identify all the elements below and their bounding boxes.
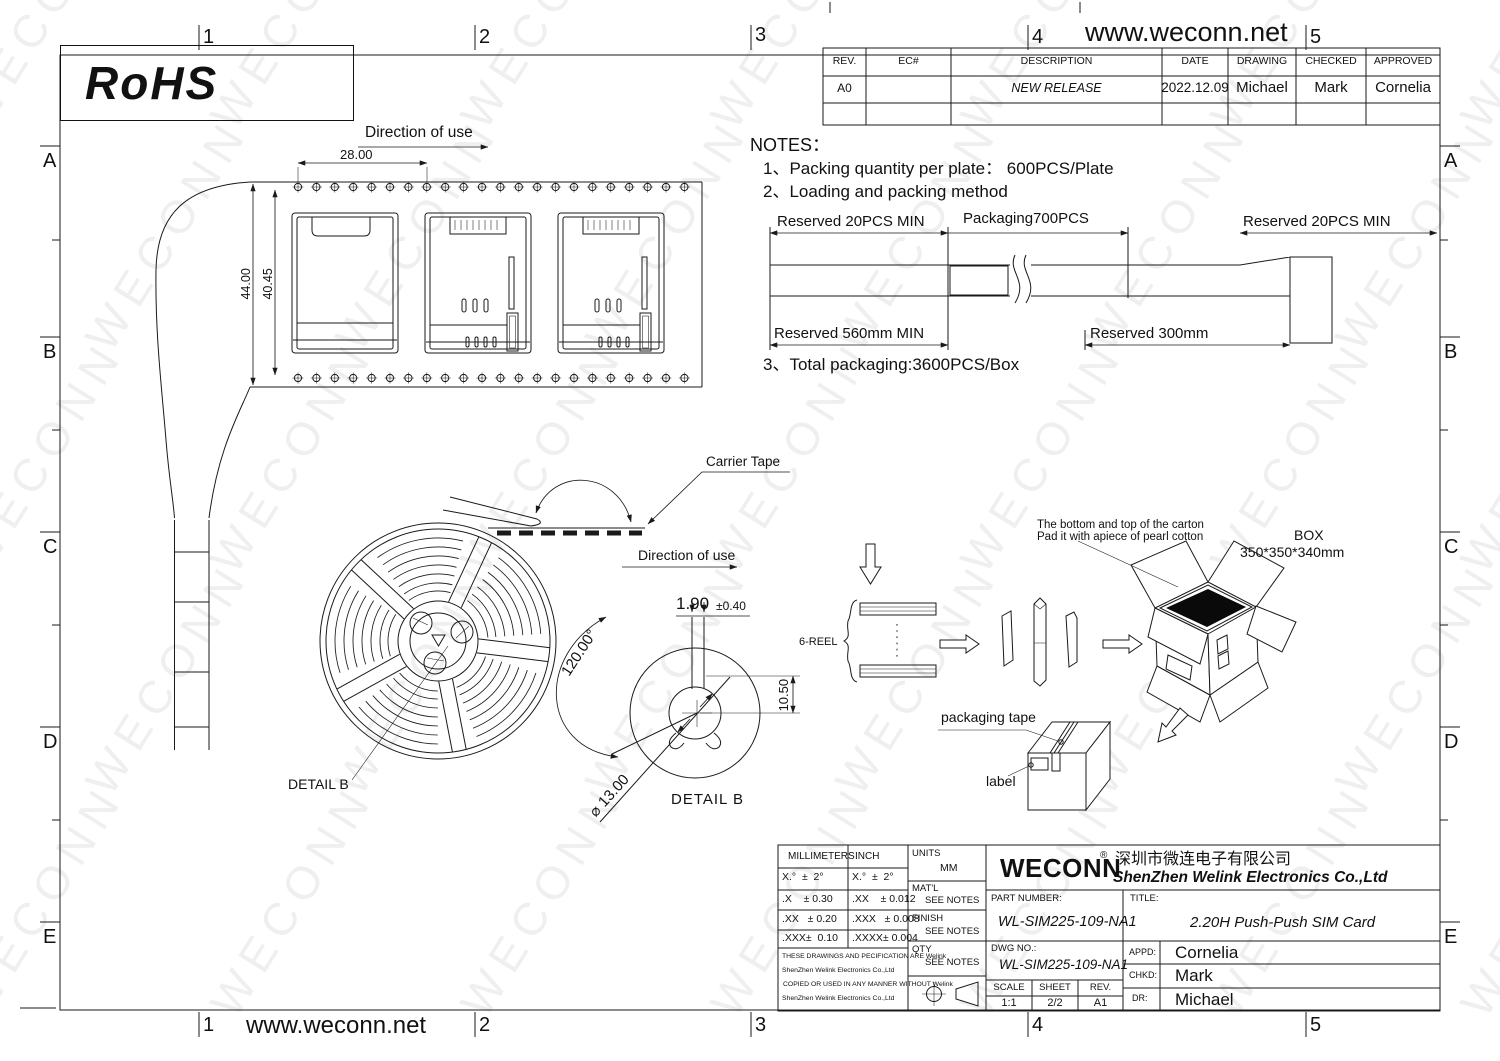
description-header: DESCRIPTION [951,56,1162,68]
box-size-label: 350*350*340mm [1240,545,1344,560]
carton-note-line1: The bottom and top of the carton [1037,519,1204,532]
reserved-left-label: Reserved 20PCS MIN [777,214,925,231]
company-name-en: ShenZhen Welink Electronics Co.,Ltd [1113,869,1387,886]
tol-mm-header: MILLIMETERS [788,851,855,862]
connector-footprint [425,213,531,353]
zone-row-a-left: A [43,150,56,172]
zone-row-d-left: D [43,731,57,753]
zone-row-a-right: A [1444,150,1457,172]
title-value: 2.20H Push-Push SIM Card [1190,915,1375,932]
matl-label: MAT'L [912,884,938,894]
ec-header: EC# [866,56,951,68]
carton-note-line2: Pad it with apiece of pearl cotton [1037,531,1203,544]
units-label: UNITS [912,849,941,859]
drawing-header: DRAWING [1228,56,1296,68]
zone-row-c-right: C [1444,536,1458,558]
pearl-cotton-pad [1066,612,1077,667]
pearl-cotton-pad [1002,611,1013,666]
title-label: TITLE: [1130,894,1159,904]
zone-col-2-top: 2 [479,26,490,48]
empty-pocket-footprint [292,213,398,353]
units-value: MM [940,863,958,875]
legal-line3: COPIED OR USED IN ANY MANNER WITHOUT Wel… [783,981,953,988]
description-value: NEW RELEASE [951,82,1162,96]
reserved-right-label: Reserved 20PCS MIN [1243,214,1391,231]
scale-label: SCALE [986,983,1032,993]
tol-mm-row4: .XXX± 0.10 [782,933,838,945]
pearl-cotton-pad [1034,598,1046,686]
checked-value: Mark [1296,80,1366,97]
reserved-300-label: Reserved 300mm [1090,326,1208,343]
notes-title: NOTES： [750,136,830,156]
sheet-label: SHEET [1032,983,1078,993]
packing-flow-drawing [844,541,1296,810]
company-name-cn: 深圳市微连电子有限公司 [1115,851,1291,869]
zone-row-b-right: B [1444,341,1457,363]
tol-inch-row2: .XX ± 0.012 [852,894,916,906]
tol-mm-row3: .XX ± 0.20 [782,914,837,926]
zone-col-4-bottom: 4 [1032,1014,1043,1036]
rev-value: A0 [823,82,866,95]
rohs-badge: RoHS [60,45,354,121]
carrier-tape-peel-drawing [443,472,790,567]
appd-label: APPD: [1129,948,1156,958]
dr-label: DR: [1132,994,1148,1004]
detail-b-callout: DETAIL B [288,777,349,792]
date-value: 2022.12.09 [1160,81,1230,96]
dwg-no-value: WL-SIM225-109-NA1 [999,958,1128,973]
appd-value: Cornelia [1175,944,1238,963]
dim-190-tol: ±0.40 [716,600,746,613]
dr-value: Michael [1175,991,1234,1010]
zone-row-e-right: E [1444,926,1457,948]
qty-label: QTY [912,945,932,955]
carrier-tape-label: Carrier Tape [706,455,780,470]
drawing-value: Michael [1228,80,1296,97]
finish-label: FINISH [912,914,943,924]
part-number-value: WL-SIM225-109-NA1 [998,915,1137,931]
zone-col-2-bottom: 2 [479,1014,490,1036]
zone-row-d-right: D [1444,731,1458,753]
carton-label-label: label [986,774,1016,789]
tol-inch-row3: .XXX ± 0.008 [852,914,920,926]
tol-mm-row2: .X ± 0.30 [782,894,833,906]
right-arrow-icon [940,635,979,653]
note-1: 1、Packing quantity per plate： 600PCS/Pla… [763,160,1114,179]
tol-mm-row1: X.° ± 2° [782,872,824,884]
right-arrow-icon [1103,635,1142,653]
rohs-text: RoHS [85,56,218,110]
legal-line2: ShenZhen Welink Electronics Co.,Ltd [782,967,894,974]
sheet-value: 2/2 [1032,997,1078,1009]
approved-value: Cornelia [1366,80,1440,97]
rev-value-block: A1 [1078,997,1123,1009]
down-arrow-icon [860,544,881,584]
zone-col-4-top: 4 [1032,26,1043,48]
tol-inch-header: INCH [855,851,879,862]
legal-line4: ShenZhen Welink Electronics Co.,Ltd [782,995,894,1002]
approved-header: APPROVED [1366,56,1440,68]
reserved-560-label: Reserved 560mm MIN [774,326,924,343]
part-number-label: PART NUMBER: [991,894,1062,904]
matl-value: SEE NOTES [925,896,979,906]
qty-value: SEE NOTES [925,958,979,968]
box-label: BOX [1294,528,1324,543]
website-url-top: www.weconn.net [1085,18,1288,48]
tol-inch-row4: .XXXX± 0.004 [852,933,918,945]
chkd-label: CHKD: [1129,971,1157,981]
rev-label: REV. [1078,983,1123,993]
dim-28: 28.00 [340,148,373,162]
six-reel-label: 6-REEL [799,636,838,648]
chkd-value: Mark [1175,967,1213,986]
rev-header: REV. [823,56,866,68]
dwg-no-label: DWG NO.: [991,944,1036,954]
direction-of-use-top: Direction of use [365,124,473,141]
zone-col-3-top: 3 [755,24,766,46]
zone-col-5-top: 5 [1310,26,1321,48]
note-3: 3、Total packaging:3600PCS/Box [763,356,1019,375]
open-carton-drawing [1078,541,1296,722]
down-left-arrow-icon [1158,708,1188,742]
drawing-art [0,0,1500,1061]
website-url-bottom: www.weconn.net [246,1013,426,1039]
zone-col-1-bottom: 1 [203,1014,214,1036]
date-header: DATE [1162,56,1228,68]
registered-mark-icon: ® [1100,850,1107,861]
reel-drawing [294,497,582,785]
dim-1050: 10.50 [777,670,791,720]
direction-of-use-reel: Direction of use [638,548,735,563]
zone-col-3-bottom: 3 [755,1014,766,1036]
packaging-label: Packaging700PCS [963,211,1089,228]
zone-row-e-left: E [43,926,56,948]
dim-190: 1.90 [676,595,709,614]
scale-value: 1:1 [986,997,1032,1009]
connector-footprint [558,213,664,353]
zone-row-c-left: C [43,536,57,558]
zone-row-b-left: B [43,341,56,363]
drawing-sheet: WECONNWECONNWECONNWECONNWECONNWECONNWECO… [0,0,1500,1061]
carrier-tape-strip-drawing [156,147,702,750]
checked-header: CHECKED [1296,56,1366,68]
packaging-tape-label: packaging tape [941,710,1036,725]
detail-b-title: DETAIL B [671,792,744,809]
note-2: 2、Loading and packing method [763,183,1008,202]
tol-inch-row1: X.° ± 2° [852,872,894,884]
closed-carton-drawing [938,722,1110,810]
dim-44: 44.00 [240,262,254,306]
finish-value: SEE NOTES [925,927,979,937]
zone-col-5-bottom: 5 [1310,1014,1321,1036]
dim-4045: 40.45 [262,262,276,306]
